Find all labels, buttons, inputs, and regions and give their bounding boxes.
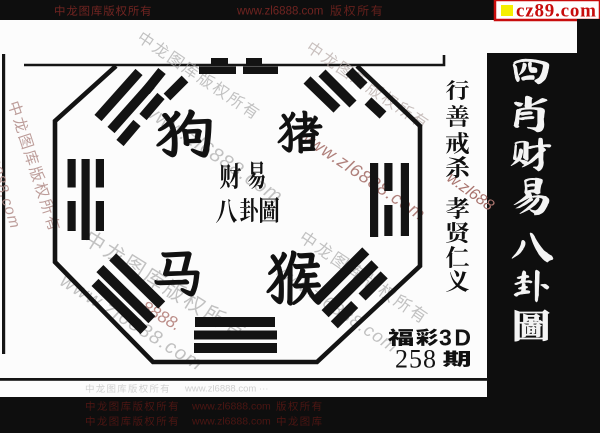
svg-text:258: 258 xyxy=(395,345,436,374)
svg-text:3D: 3D xyxy=(439,325,471,351)
svg-text:www.zl6888.com: www.zl6888.com xyxy=(191,401,271,413)
svg-text:www.zl6888.com: www.zl6888.com xyxy=(191,416,271,428)
svg-text:www.zl6888.com: www.zl6888.com xyxy=(236,6,323,18)
svg-text:www.zl6888.com ···: www.zl6888.com ··· xyxy=(184,384,268,395)
svg-text:cz89.com: cz89.com xyxy=(516,1,596,22)
